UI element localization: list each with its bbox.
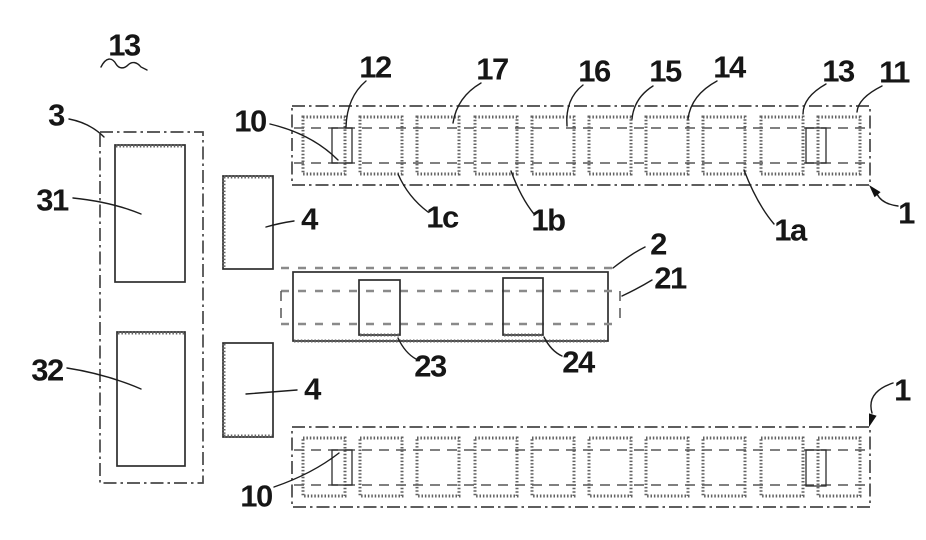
block-4-upper xyxy=(223,176,273,269)
top-strip-squares xyxy=(303,117,860,174)
cavity-square xyxy=(589,117,631,174)
bottom-strip-group xyxy=(292,427,870,507)
top-strip-frame xyxy=(292,106,870,185)
cavity-square xyxy=(303,117,345,174)
bottom-strip-right-bracket xyxy=(806,450,826,486)
cavity-square xyxy=(360,438,402,496)
cavity-square xyxy=(417,117,459,174)
ref-label-2: 2 xyxy=(650,229,666,260)
arrowhead-1-lower xyxy=(869,413,877,427)
inner-rect-31 xyxy=(115,145,185,282)
top-strip-centerlines xyxy=(294,128,868,163)
cavity-square xyxy=(475,117,517,174)
cavity-square xyxy=(360,117,402,174)
ref-label-12: 12 xyxy=(359,52,390,83)
cavity-square xyxy=(818,438,860,496)
leader-32 xyxy=(67,368,141,389)
ref-label-fig-13: 13 xyxy=(108,30,139,61)
leader-14 xyxy=(688,81,717,119)
ref-label-3: 3 xyxy=(48,100,64,131)
leader-10-lower xyxy=(274,453,339,487)
top-strip-right-bracket-11 xyxy=(806,128,826,163)
ref-label-10-upper: 10 xyxy=(234,106,265,137)
leader-3 xyxy=(69,119,104,137)
leader-17 xyxy=(453,83,481,123)
leader-12 xyxy=(346,81,366,127)
leader-4-lower xyxy=(246,390,297,394)
cavity-square xyxy=(475,438,517,496)
bottom-strip-squares xyxy=(303,438,860,496)
ref-label-4-lower: 4 xyxy=(304,374,320,405)
arrowhead-1-upper xyxy=(869,185,881,197)
ref-label-1-upper: 1 xyxy=(898,198,914,229)
ref-label-23: 23 xyxy=(414,351,445,382)
diagram-linework xyxy=(0,0,926,540)
ref-label-32: 32 xyxy=(31,355,62,386)
leader-1-upper xyxy=(877,194,898,206)
cavity-square xyxy=(761,117,803,174)
ref-label-1b: 1b xyxy=(531,205,564,236)
leader-1a xyxy=(744,170,774,224)
leader-1-lower xyxy=(871,383,893,413)
ref-label-24: 24 xyxy=(562,347,593,378)
leader-13 xyxy=(803,84,826,114)
cavity-square xyxy=(532,117,574,174)
block-4-lower xyxy=(223,343,273,437)
inner-rect-24 xyxy=(503,278,543,335)
ref-label-13: 13 xyxy=(822,56,853,87)
ref-label-31: 31 xyxy=(36,185,67,216)
cavity-square xyxy=(703,117,745,174)
ref-label-17: 17 xyxy=(476,54,507,85)
ref-label-4-upper: 4 xyxy=(301,204,317,235)
leader-4-upper xyxy=(266,221,294,227)
cavity-square xyxy=(417,438,459,496)
inner-rect-23 xyxy=(359,280,400,335)
middle-strip-group xyxy=(281,268,620,341)
cavity-square xyxy=(532,438,574,496)
top-strip-group xyxy=(292,106,870,185)
middle-strip-frame-2 xyxy=(293,272,608,341)
leader-lines xyxy=(67,59,898,487)
ref-label-16: 16 xyxy=(578,56,609,87)
cavity-square xyxy=(761,438,803,496)
bottom-strip-centerlines xyxy=(294,450,868,485)
leader-21 xyxy=(622,280,652,296)
ref-label-11: 11 xyxy=(879,57,909,88)
inner-rect-32 xyxy=(117,332,185,466)
cavity-square xyxy=(646,117,688,174)
ref-label-21: 21 xyxy=(654,263,685,294)
ref-label-14: 14 xyxy=(713,52,744,83)
cavity-square xyxy=(303,438,345,496)
leader-1c xyxy=(398,174,428,212)
ref-label-1-lower: 1 xyxy=(894,375,910,406)
figure-canvas: 13 3 31 32 4 4 10 12 17 16 15 14 13 11 1… xyxy=(0,0,926,540)
block-4-group xyxy=(223,176,273,437)
left-block-group xyxy=(100,132,203,483)
cavity-square xyxy=(703,438,745,496)
leader-15 xyxy=(632,86,653,119)
leader-2 xyxy=(613,247,645,268)
ref-label-1c: 1c xyxy=(426,202,457,233)
cavity-square xyxy=(818,117,860,174)
ref-label-10-lower: 10 xyxy=(240,481,271,512)
cavity-square xyxy=(646,438,688,496)
leader-31 xyxy=(73,198,141,214)
ref-label-15: 15 xyxy=(649,56,680,87)
cavity-square xyxy=(589,438,631,496)
ref-label-1a: 1a xyxy=(774,215,805,246)
leader-11 xyxy=(857,86,882,112)
